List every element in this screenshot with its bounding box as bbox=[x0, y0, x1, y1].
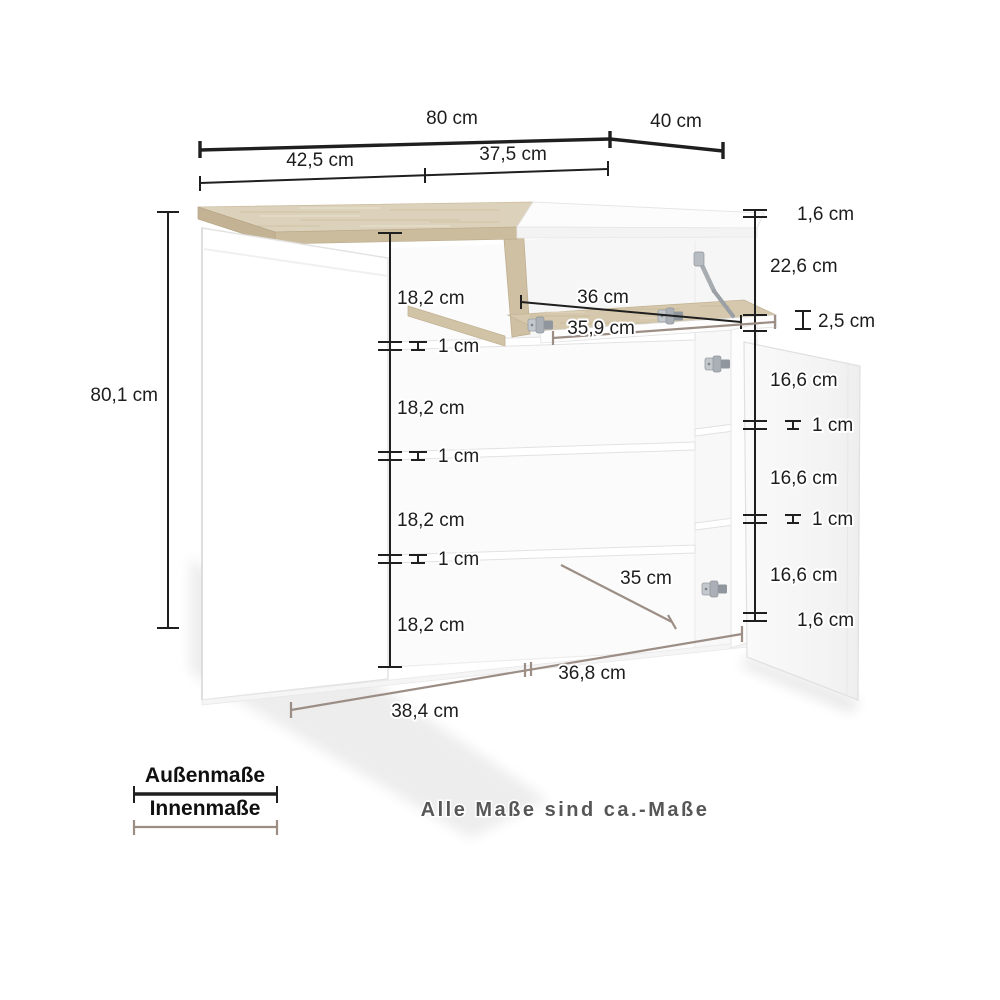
legend-inner-label: Innenmaße bbox=[150, 797, 261, 820]
cabinet-drawing: 80 cm 40 cm 42,5 cm 37,5 cm 80,1 cm 18,2… bbox=[0, 0, 1000, 1000]
label-bottom-left: 38,4 cm bbox=[391, 701, 459, 722]
label-flap-outer: 36 cm bbox=[577, 287, 629, 308]
label-right-gap-3: 16,6 cm bbox=[770, 565, 838, 586]
label-flap-thk: 2,5 cm bbox=[818, 311, 875, 332]
label-right-thk-1: 1 cm bbox=[812, 415, 853, 436]
white-top-slab bbox=[517, 202, 764, 238]
dim-top-sections bbox=[200, 161, 608, 191]
dim-height bbox=[157, 212, 179, 628]
legend-outer-label: Außenmaße bbox=[145, 764, 265, 787]
left-door bbox=[202, 228, 388, 700]
label-bottom-right: 36,8 cm bbox=[558, 663, 626, 684]
footer-note: Alle Maße sind ca.-Maße bbox=[421, 799, 710, 821]
label-left-gap-2: 18,2 cm bbox=[397, 398, 465, 419]
dim-top-width bbox=[200, 131, 610, 158]
label-left-thk-2: 1 cm bbox=[438, 446, 479, 467]
label-right-gap-1: 16,6 cm bbox=[770, 370, 838, 391]
label-right-gap-2: 16,6 cm bbox=[770, 468, 838, 489]
label-height-total: 80,1 cm bbox=[90, 385, 158, 406]
label-depth-inner: 35 cm bbox=[620, 568, 672, 589]
dimension-diagram: 80 cm 40 cm 42,5 cm 37,5 cm 80,1 cm 18,2… bbox=[0, 0, 1000, 1000]
label-flap-opening: 22,6 cm bbox=[770, 256, 838, 277]
label-width-left: 42,5 cm bbox=[286, 150, 354, 171]
label-width-right: 37,5 cm bbox=[479, 144, 547, 165]
label-right-thk-2: 1 cm bbox=[812, 509, 853, 530]
label-left-thk-1: 1 cm bbox=[438, 336, 479, 357]
label-left-gap-3: 18,2 cm bbox=[397, 510, 465, 531]
legend: Außenmaße Innenmaße bbox=[134, 764, 277, 835]
label-left-thk-3: 1 cm bbox=[438, 549, 479, 570]
label-left-gap-4: 18,2 cm bbox=[397, 615, 465, 636]
label-width-total: 80 cm bbox=[426, 108, 478, 129]
label-left-gap-1: 18,2 cm bbox=[397, 288, 465, 309]
label-flap-inner: 35,9 cm bbox=[567, 318, 635, 339]
label-bottom-panel-thk: 1,6 cm bbox=[797, 610, 854, 631]
label-depth-total: 40 cm bbox=[650, 111, 702, 132]
dim-top-depth bbox=[610, 139, 723, 159]
label-top-panel-thk: 1,6 cm bbox=[797, 204, 854, 225]
